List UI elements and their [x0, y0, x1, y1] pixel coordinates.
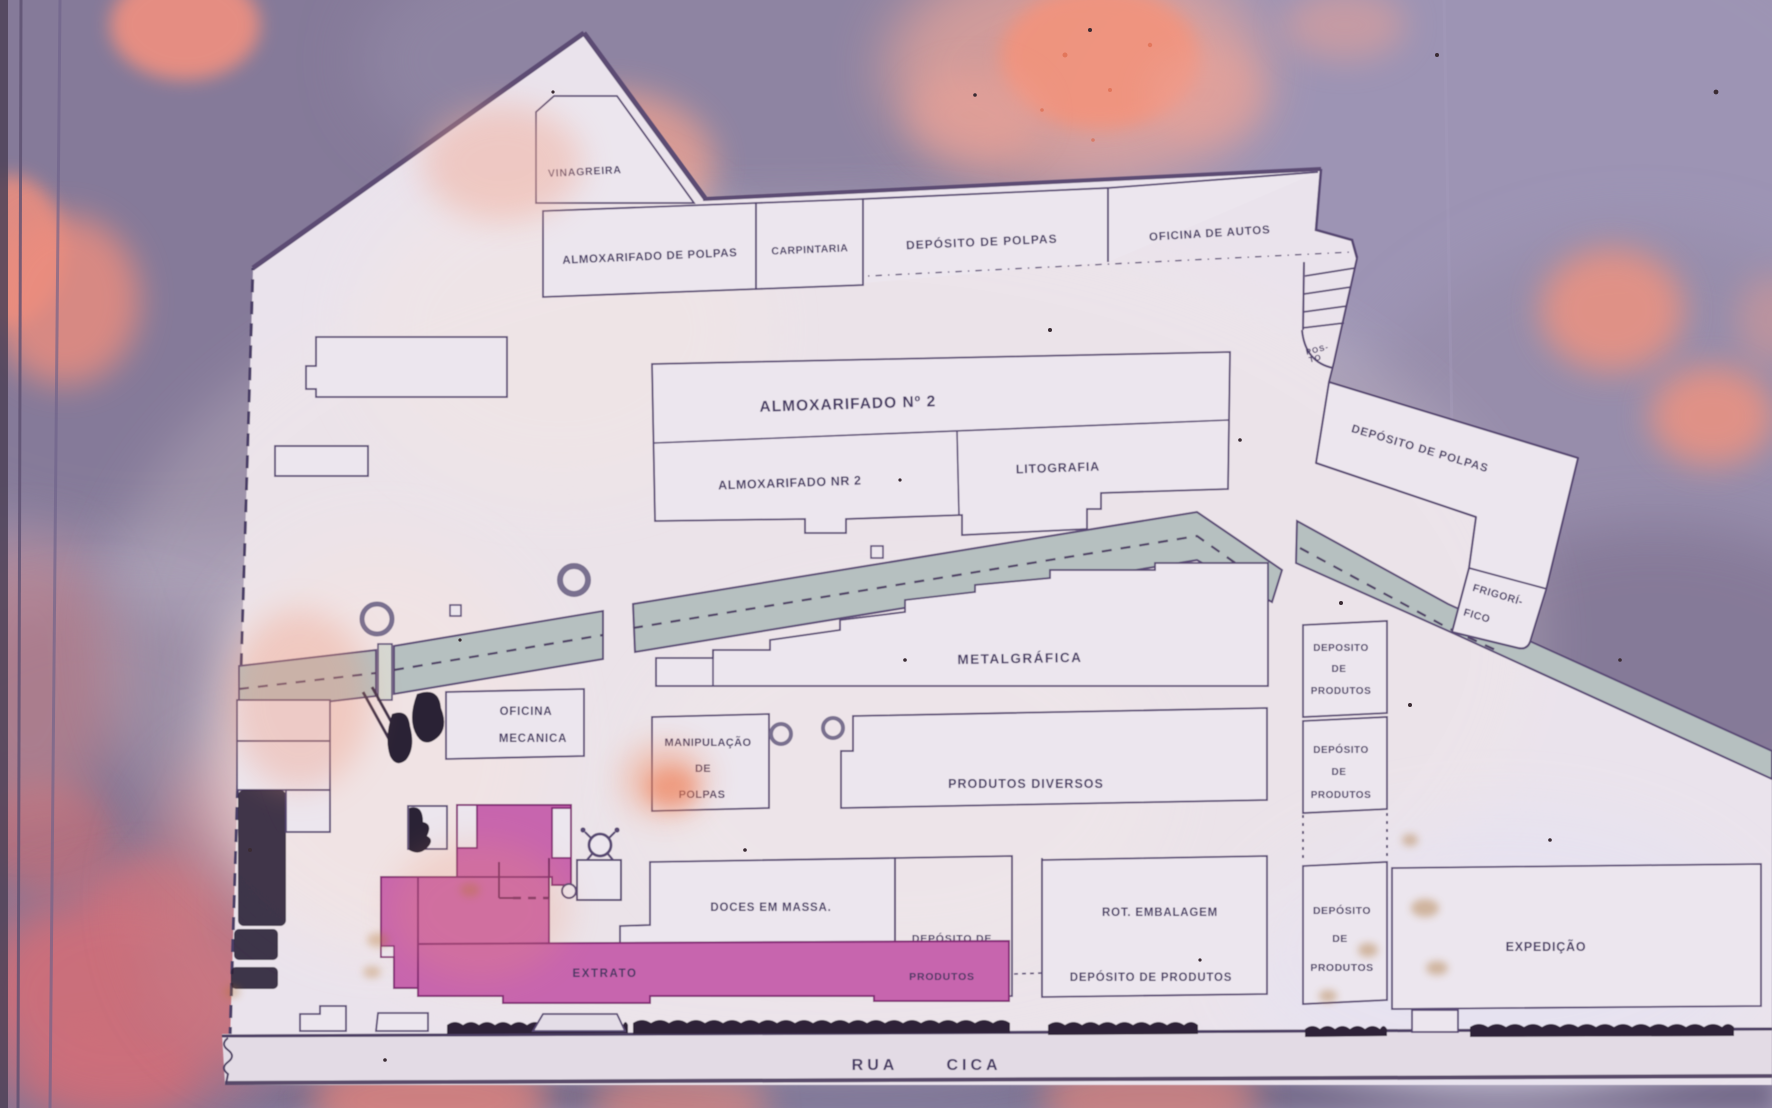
svg-text:PRODUTOS: PRODUTOS — [1311, 790, 1372, 801]
svg-text:EXPEDIÇÃO: EXPEDIÇÃO — [1506, 939, 1587, 954]
svg-text:DE: DE — [1332, 664, 1347, 675]
svg-text:PRODUTOS: PRODUTOS — [1310, 962, 1373, 974]
svg-text:DE: DE — [1332, 933, 1348, 945]
svg-text:EXTRATO: EXTRATO — [572, 968, 637, 980]
svg-text:PRODUTOS: PRODUTOS — [909, 971, 975, 983]
svg-text:CICA: CICA — [946, 1057, 1001, 1074]
svg-text:MECANICA: MECANICA — [499, 733, 567, 745]
svg-text:METALGRÁFICA: METALGRÁFICA — [957, 650, 1082, 667]
svg-text:PRODUTOS: PRODUTOS — [1311, 686, 1372, 697]
svg-text:DEPÓSITO DE PRODUTOS: DEPÓSITO DE PRODUTOS — [1070, 971, 1233, 984]
svg-text:OFICINA: OFICINA — [500, 706, 553, 718]
svg-text:DEPOSITO: DEPOSITO — [1313, 643, 1369, 654]
svg-text:DOCES EM MASSA.: DOCES EM MASSA. — [710, 902, 831, 914]
svg-text:DEPÓSITO: DEPÓSITO — [1313, 904, 1371, 917]
svg-text:PRODUTOS DIVERSOS: PRODUTOS DIVERSOS — [948, 777, 1104, 791]
svg-text:ROT. EMBALAGEM: ROT. EMBALAGEM — [1102, 907, 1218, 919]
svg-text:LITOGRAFIA: LITOGRAFIA — [1016, 460, 1101, 477]
svg-text:DE: DE — [1332, 767, 1347, 778]
svg-text:DEPÓSITO: DEPÓSITO — [1313, 743, 1369, 756]
svg-text:RUA: RUA — [852, 1057, 899, 1074]
